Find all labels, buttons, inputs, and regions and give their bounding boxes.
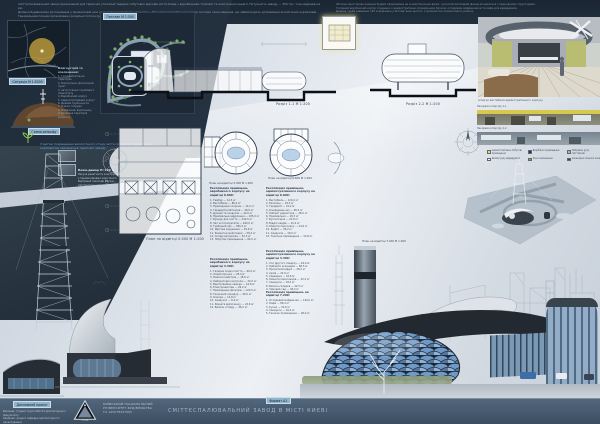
title-bar: Дипломний проект Виконав: студент групи … [0, 398, 600, 424]
person-silhouette [560, 57, 564, 76]
schedule-title: Експлікація приміщень адміністративного … [266, 187, 318, 197]
bus-render [520, 372, 536, 379]
legend-swatch [567, 150, 571, 154]
presentation-board: Сміттєспалювальний завод призначений для… [0, 0, 600, 424]
schedule-production-3300: Експлікація приміщень виробничого корпус… [210, 258, 260, 309]
section-detail-drawing [322, 16, 356, 50]
glass-band-render [490, 332, 548, 377]
credits-text: Виконав: студент групи АБС-51 архітектур… [3, 410, 67, 424]
text-line: 9. Резервна територія розвитку [58, 112, 98, 119]
text-line: Оглядовий рівень +86.000. [78, 191, 124, 195]
bird-icon [92, 280, 106, 286]
legend-label: Адміністративно-побутові приміщення [492, 150, 526, 156]
legend-swatch [528, 150, 532, 154]
text-line: Несуча решітчаста конструкція [78, 173, 124, 177]
compass-rose-icon [454, 124, 482, 160]
plan-level-6600-drawing [262, 127, 320, 179]
car-render [556, 373, 567, 379]
green-wall-left [492, 41, 512, 67]
schedule-title: Експлікація приміщень виробничого корпус… [210, 258, 260, 268]
green-wall-right [566, 41, 586, 67]
interior-caption: Інтер'єр вестибюля адміністративного кор… [478, 99, 598, 102]
text-line: 1. Головний в'їзд на територію [58, 75, 98, 82]
text-line: ТА АРХІТЕКТУРИ [103, 411, 153, 415]
landscaping-items: 1. Головний в'їзд на територію2. Контрол… [58, 75, 98, 119]
interior-lobby-render [478, 17, 600, 97]
stamp-label: Дипломний проект [13, 401, 51, 408]
mast-sketch [40, 89, 46, 104]
panorama-1-strip [477, 110, 600, 125]
legend-item: Адміністративно-побутові приміщення [487, 150, 526, 156]
sail-building-render [55, 293, 180, 399]
panorama-1-label: Панорама інтер'єру 1-1 [477, 105, 506, 108]
legend-item: Виробничі приміщення [528, 150, 565, 156]
sail-roof [69, 299, 115, 355]
text-line: Димова труба заввишки 120 м вирішена у в… [336, 10, 558, 14]
section-2-drawing [368, 38, 478, 104]
genplan-label: Генплан М 1:500 [103, 13, 137, 20]
landscaping-list: Благоустрій та озеленення: 1. Головний в… [58, 66, 98, 119]
project-title: СМІТТЄСПАЛЮВАЛЬНИЙ ЗАВОД В МІСТІ КИЄВІ [168, 408, 328, 414]
sheet-format-label: Формат А1 [266, 397, 291, 404]
section-1-caption: Розріз 1-1 М 1:200 [238, 102, 348, 106]
text-line: 12. Технічне приміщення — 14,8 м² [266, 235, 318, 238]
plan-level-6600-caption: План на відмітці 6.600 М 1:200 [258, 176, 322, 180]
university-logo [72, 400, 98, 421]
plan-level-3300-drawing [204, 127, 258, 179]
schedule-items: 1. Галерея подачі сміття — 96,0 м²2. Опе… [210, 270, 260, 310]
car-render-2 [584, 374, 594, 380]
tower-note-title: Вежа-димар H=120 м [78, 168, 124, 172]
text-line: 12. Балкон огляду — 36,0 м² [210, 306, 260, 309]
legend-item: Напрямок руху сміттєвозів [567, 150, 600, 156]
landscaping-title: Благоустрій та озеленення: [58, 66, 98, 74]
sprout-icon [20, 131, 36, 144]
legend-swatch [487, 150, 491, 154]
text-line: Виконав: студент групи АБС-51 архітектур… [3, 410, 67, 417]
schedule-admin-0: Експлікація приміщень адміністративного … [266, 187, 318, 238]
tower-note-lines: Несуча решітчаста конструкціяз трьома рі… [78, 173, 124, 194]
logo-caption: КНУБА [70, 420, 100, 422]
plan-level-7200-drawing [324, 140, 364, 176]
text-line: 13. Побутові приміщення — 64,0 м² [210, 238, 260, 241]
schedule-production-0: Експлікація приміщень виробничого корпус… [210, 187, 260, 242]
text-line: виконує роль міського маяка. [78, 187, 124, 191]
university-name: КИЇВСЬКИЙ НАЦІОНАЛЬНИЙУНІВЕРСИТЕТ БУДІВН… [103, 403, 153, 415]
tower-note: Вежа-димар H=120 м Несуча решітчаста кон… [78, 168, 124, 194]
legend-label: Виробничі приміщення [533, 150, 560, 153]
schedule-items: 1. Тамбур — 12,5 м²2. Вестибюль — 86,4 м… [210, 199, 260, 242]
text-line: 2. Контрольно-пропускний пункт [58, 82, 98, 89]
section-1-drawing [128, 34, 338, 106]
situation-map-label: Ситуація М 1:5000 [9, 78, 46, 85]
concept-description-text: Об'ємно-просторове рішення будівлі сформ… [336, 3, 558, 14]
legend-label: Напрямок руху сміттєвозів [572, 150, 600, 156]
white-tree-sketch [362, 342, 406, 396]
section-2-caption: Розріз 2-2 М 1:200 [368, 102, 478, 106]
axonometric-site-model [460, 156, 600, 248]
plan-level-3300-caption: План на відмітці 3.300 М 1:200 [200, 181, 262, 185]
text-line: Керівник: доцент кафедри архітектурного … [3, 417, 67, 424]
schedule-title: Експлікація приміщень виробничого корпус… [210, 187, 260, 197]
panorama-2-strip [477, 132, 600, 145]
schedule-items: 1. Вестибюль — 120,0 м²2. Ресепшн — 18,5… [266, 199, 318, 239]
